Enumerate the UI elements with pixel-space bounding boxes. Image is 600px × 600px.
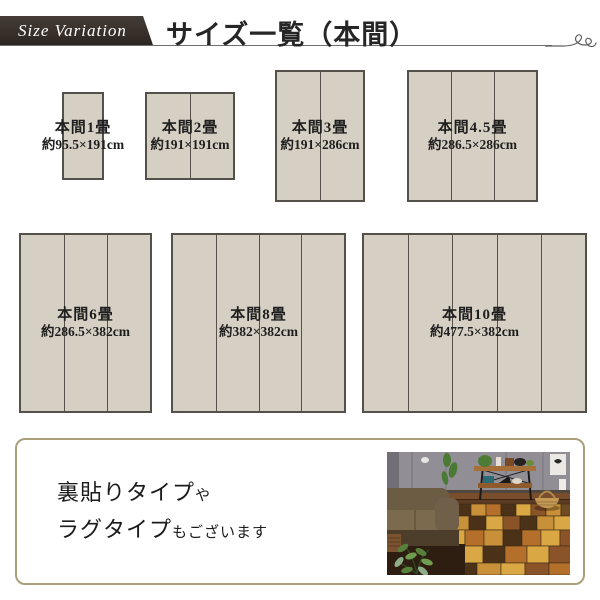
note-box: 裏貼りタイプや ラグタイプもございます <box>15 438 585 585</box>
mat-name: 本間10畳 <box>430 306 519 324</box>
mat-name: 本間3畳 <box>281 119 360 137</box>
mat-dims: 約382×382cm <box>219 324 298 340</box>
note-line2-big: ラグタイプ <box>57 517 172 542</box>
mat-label: 本間2畳 約191×191cm <box>151 119 230 153</box>
mat-honma-1jo: 本間1畳 約95.5×191cm <box>62 92 104 180</box>
mat-divider-line <box>408 235 409 411</box>
mat-honma-2jo: 本間2畳 約191×191cm <box>145 92 235 180</box>
mat-name: 本間1畳 <box>42 119 124 137</box>
lifestyle-photo <box>387 452 570 575</box>
note-line1-big: 裏貼りタイプ <box>57 480 195 505</box>
mat-name: 本間2畳 <box>151 119 230 137</box>
mat-name: 本間8畳 <box>219 306 298 324</box>
mat-dims: 約286.5×382cm <box>41 324 130 340</box>
mat-dims: 約95.5×191cm <box>42 137 124 153</box>
size-variation-badge: Size Variation <box>0 16 153 45</box>
mat-label: 本間3畳 約191×286cm <box>281 119 360 153</box>
note-text: 裏貼りタイプや ラグタイプもございます <box>57 476 268 550</box>
mat-label: 本間10畳 約477.5×382cm <box>430 306 519 340</box>
badge-label: Size Variation <box>18 21 127 40</box>
mat-label: 本間4.5畳 約286.5×286cm <box>428 119 517 153</box>
mat-label: 本間1畳 約95.5×191cm <box>42 119 124 153</box>
mat-dims: 約286.5×286cm <box>428 137 517 153</box>
wall-poster <box>550 454 566 475</box>
mat-divider-line <box>216 235 217 411</box>
mat-dims: 約191×286cm <box>281 137 360 153</box>
mat-name: 本間4.5畳 <box>428 119 517 137</box>
mat-label: 本間8畳 約382×382cm <box>219 306 298 340</box>
note-line1-small: や <box>195 488 211 504</box>
page-title: サイズ一覧（本間） <box>166 13 417 52</box>
mat-honma-8jo: 本間8畳 約382×382cm <box>171 233 346 413</box>
mat-divider-line <box>541 235 542 411</box>
flourish-ornament <box>545 32 597 58</box>
mat-dims: 約477.5×382cm <box>430 324 519 340</box>
mat-name: 本間6畳 <box>41 306 130 324</box>
mat-honma-6jo: 本間6畳 約286.5×382cm <box>19 233 152 413</box>
room-scene <box>387 452 570 575</box>
note-line2-small: もございます <box>172 525 268 541</box>
mat-divider-line <box>301 235 302 411</box>
mat-honma-3jo: 本間3畳 約191×286cm <box>275 70 365 202</box>
mat-honma-10jo: 本間10畳 約477.5×382cm <box>362 233 587 413</box>
mat-honma-4-5jo: 本間4.5畳 約286.5×286cm <box>407 70 538 202</box>
mat-label: 本間6畳 約286.5×382cm <box>41 306 130 340</box>
mat-dims: 約191×191cm <box>151 137 230 153</box>
size-variation-page: Size Variation サイズ一覧（本間） 本間1畳 約95.5×191c… <box>0 0 600 600</box>
